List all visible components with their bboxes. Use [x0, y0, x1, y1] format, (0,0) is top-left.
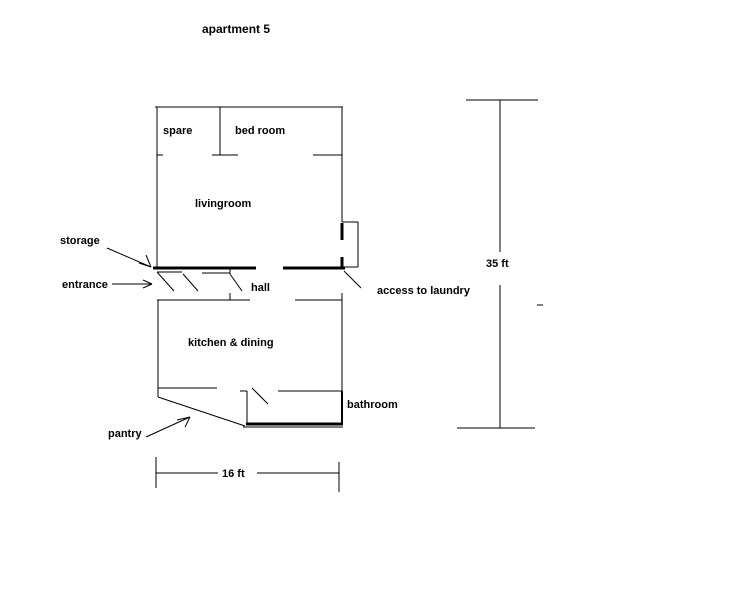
entrance-arrow [112, 280, 152, 288]
laundry-closet [342, 222, 361, 288]
pantry-arrow [146, 417, 190, 437]
pantry-slanted-wall [158, 397, 245, 426]
door-swing [183, 274, 198, 291]
dimension-label-width: 16 ft [222, 468, 245, 480]
dimension-label-height: 35 ft [486, 258, 509, 270]
bathroom-walls [240, 388, 343, 427]
annotation-storage: storage [60, 235, 100, 247]
room-label-hall: hall [251, 282, 270, 294]
room-label-spare: spare [163, 125, 192, 137]
floor-plan-canvas: apartment 5 spare bed room livingroom st… [0, 0, 744, 611]
page-title: apartment 5 [202, 22, 270, 36]
arrow-head [143, 284, 152, 288]
arrow-head [143, 280, 152, 284]
annotation-pantry: pantry [108, 428, 143, 440]
room-label-livingroom: livingroom [195, 198, 251, 210]
door-swing [344, 271, 361, 288]
hall-doors [157, 268, 242, 291]
room-label-kitchen-dining: kitchen & dining [188, 337, 274, 349]
width-dimension-line [156, 457, 339, 492]
storage-arrow [107, 248, 151, 267]
door-swing [230, 274, 242, 291]
arrow-shaft [107, 248, 151, 267]
room-label-bathroom: bathroom [347, 399, 398, 411]
annotation-laundry: access to laundry [377, 285, 471, 297]
arrow-shaft [146, 417, 190, 437]
door-swing [252, 388, 268, 404]
kitchen-walls [157, 293, 342, 426]
room-label-bedroom: bed room [235, 125, 285, 137]
floor-plan-drawing: apartment 5 spare bed room livingroom st… [0, 0, 744, 611]
door-swing [157, 272, 174, 291]
annotation-entrance: entrance [62, 279, 108, 291]
